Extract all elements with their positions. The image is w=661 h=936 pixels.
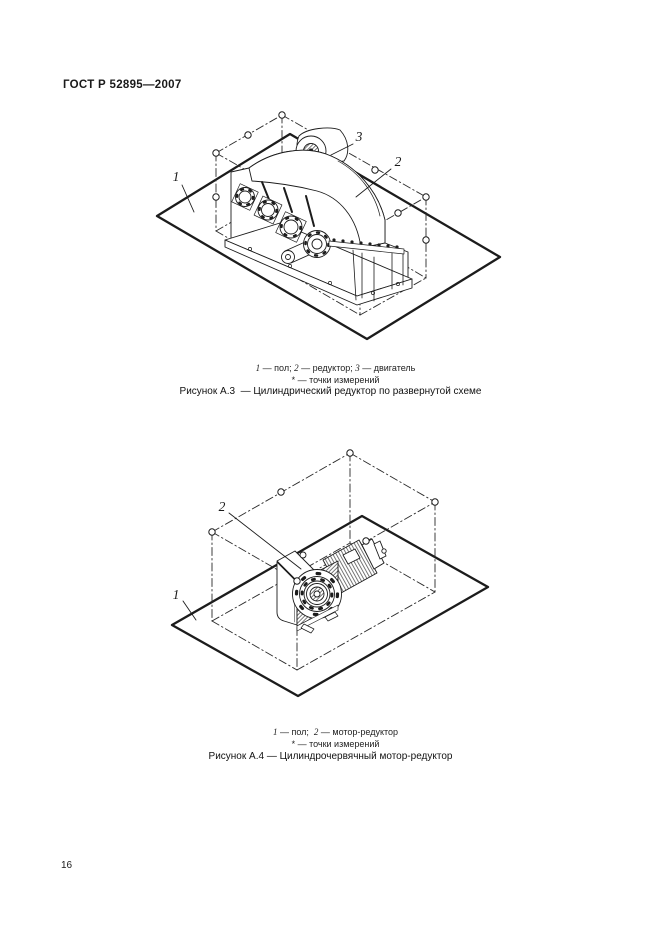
figures-canvas: 1 2 3 bbox=[0, 0, 661, 936]
document-page: ГОСТ Р 52895—2007 bbox=[0, 0, 661, 936]
fig-a3-label-motor: 3 bbox=[355, 129, 363, 144]
fig-a3-label-reducer: 2 bbox=[395, 154, 402, 169]
fig-a4-caption: Рисунок А.4 — Цилиндрочервячный мотор-ре… bbox=[0, 751, 661, 762]
fig-a3-caption: Рисунок А.3 — Цилиндрический редуктор по… bbox=[0, 386, 661, 397]
fig-a3-reducer bbox=[225, 128, 412, 305]
fig-a3-label-floor: 1 bbox=[173, 169, 180, 184]
page-number: 16 bbox=[61, 860, 72, 871]
fig-a4-drawing: 2 1 bbox=[172, 450, 488, 696]
fig-a4-label-motor-reducer: 2 bbox=[219, 499, 226, 514]
fig-a4-label-floor: 1 bbox=[173, 587, 180, 602]
fig-a3-drawing: 1 2 3 bbox=[157, 112, 500, 339]
